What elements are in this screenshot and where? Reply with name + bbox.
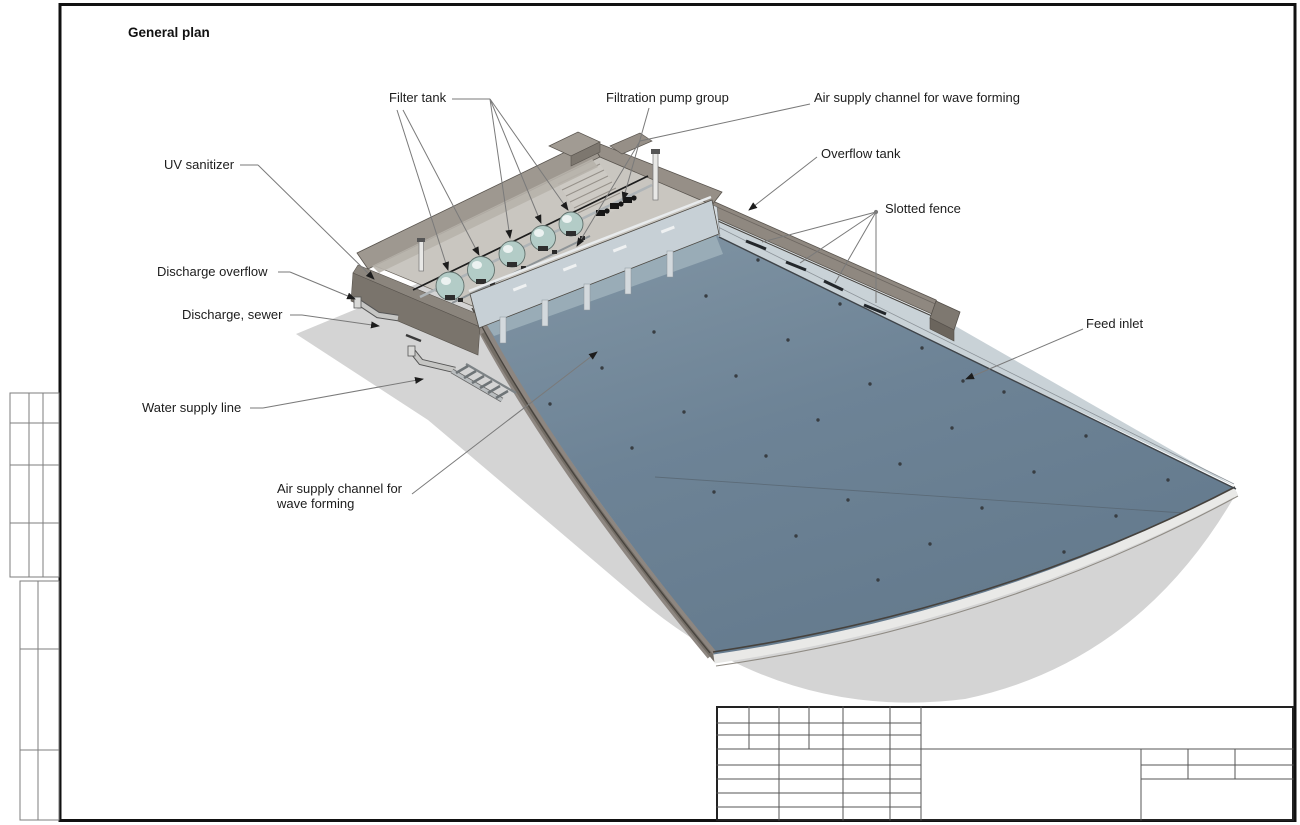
filter-tank-item xyxy=(468,257,495,285)
margin-table-lower xyxy=(20,581,59,820)
leader-uv-sanitizer xyxy=(240,165,374,279)
callout-filter-tank: Filter tank xyxy=(389,90,446,105)
callout-air-supply-channel-top: Air supply channel for wave forming xyxy=(814,90,1020,105)
margin-table-upper xyxy=(10,393,59,577)
leader-overflow-tank xyxy=(749,157,817,210)
filter-tank-item xyxy=(531,226,556,252)
filter-tank-item xyxy=(499,241,525,267)
callout-slotted-fence: Slotted fence xyxy=(885,201,961,216)
filter-tank-item xyxy=(559,212,583,236)
callout-water-supply-line: Water supply line xyxy=(142,400,241,415)
title-block xyxy=(717,707,1293,820)
filter-tank-item xyxy=(436,272,464,300)
callout-air-supply-channel-bottom: Air supply channel for wave forming xyxy=(277,481,419,512)
callout-feed-inlet: Feed inlet xyxy=(1086,316,1143,331)
page-title: General plan xyxy=(128,25,210,40)
callout-overflow-tank: Overflow tank xyxy=(821,146,900,161)
callout-discharge-sewer: Discharge, sewer xyxy=(182,307,282,322)
callout-uv-sanitizer: UV sanitizer xyxy=(164,157,234,172)
callout-discharge-overflow: Discharge overflow xyxy=(157,264,268,279)
leader-discharge-overflow xyxy=(278,272,355,299)
drawing-sheet: General plan Filter tank Filtration pump… xyxy=(0,0,1300,825)
callout-filtration-pump-group: Filtration pump group xyxy=(606,90,729,105)
